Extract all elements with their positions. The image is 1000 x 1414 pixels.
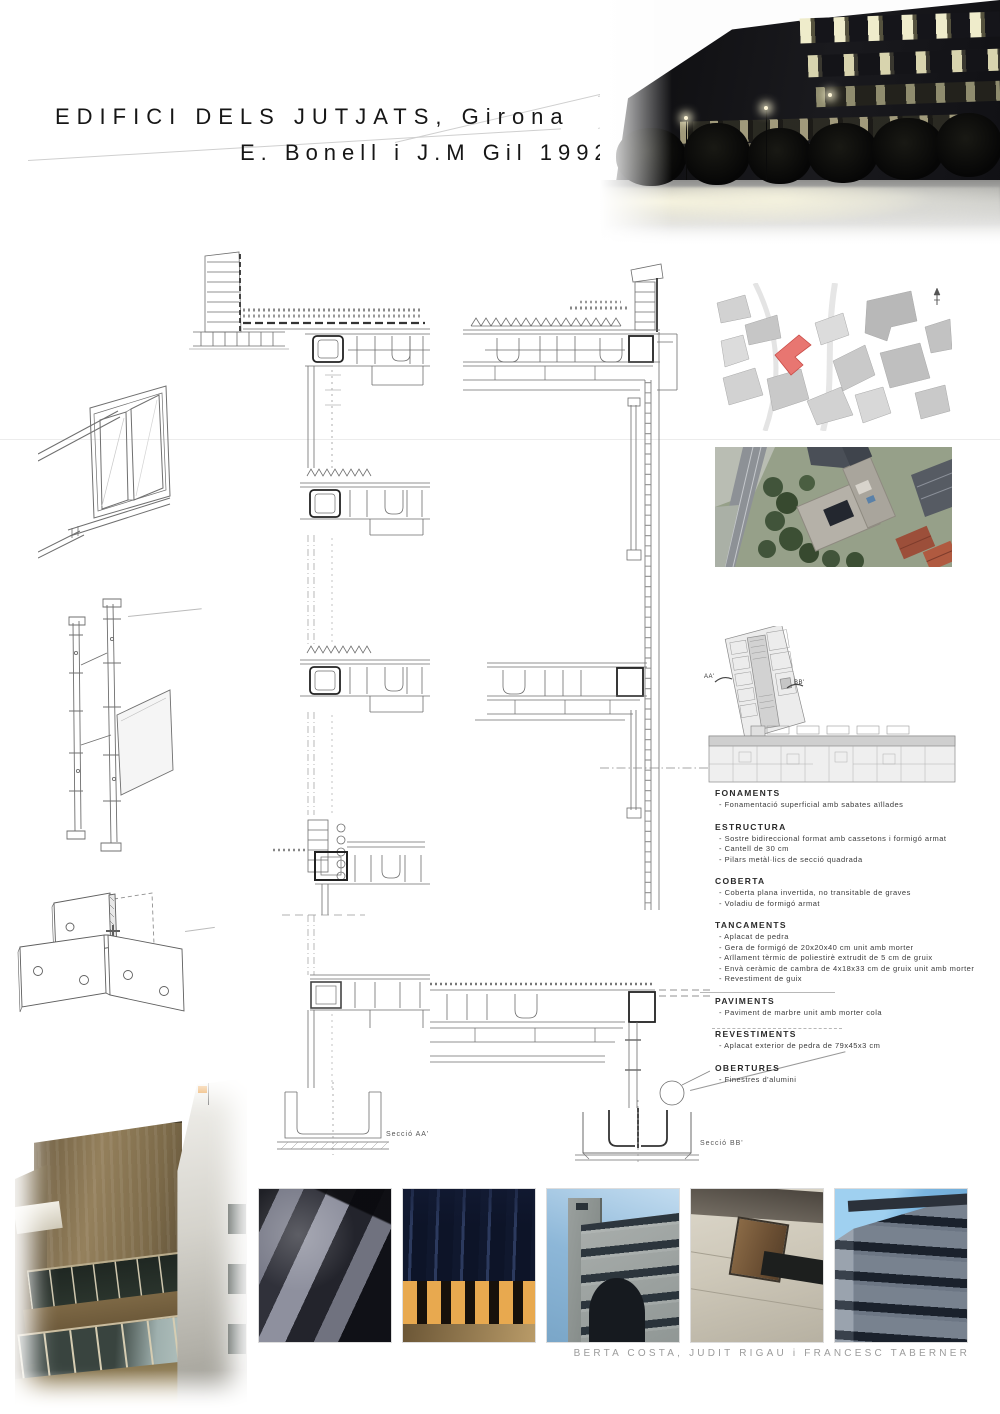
- presentation-board: EDIFICI DELS JUTJATS, Girona E. Bonell i…: [0, 0, 1000, 1414]
- floor-plan-figure: AA' BB': [703, 626, 963, 788]
- spec-item: - Sostre bidireccional format amb casset…: [715, 834, 987, 845]
- streetlight-pole: [766, 108, 767, 180]
- photo-fade: [600, 224, 1000, 246]
- spec-heading: PAVIMENTS: [715, 996, 987, 1006]
- tree-silhouette: [936, 113, 1000, 177]
- streetlight: [684, 116, 688, 120]
- photo-fade: [600, 0, 672, 246]
- spec-list: - Finestres d'alumini: [715, 1075, 987, 1086]
- spec-heading: REVESTIMENTS: [715, 1029, 987, 1039]
- credits-line: BERTA COSTA, JUDIT RIGAU i FRANCESC TABE…: [574, 1348, 970, 1359]
- spec-item: - Paviment de marbre unit amb morter col…: [715, 1008, 987, 1019]
- spec-item: - Aplacat de pedra: [715, 932, 987, 943]
- spec-heading: COBERTA: [715, 876, 987, 886]
- night-facade-photo: [600, 0, 1000, 246]
- stone-anchor-sketch: [12, 885, 197, 1045]
- spec-section: TANCAMENTS - Aplacat de pedra- Gera de f…: [715, 920, 987, 985]
- spec-heading: ESTRUCTURA: [715, 822, 987, 832]
- tree-silhouette: [684, 123, 750, 185]
- facade-detail-photo: [258, 1188, 392, 1343]
- building-corner-photo: [834, 1188, 968, 1343]
- street-corner-photo: [546, 1188, 680, 1343]
- person-silhouette: [589, 1278, 644, 1343]
- spec-item: - Fonamentació superficial amb sabates a…: [715, 800, 987, 811]
- plan-label-aa: AA': [704, 674, 715, 680]
- spec-list: - Fonamentació superficial amb sabates a…: [715, 800, 987, 811]
- spec-item: - Pilars metàl·lics de secció quadrada: [715, 855, 987, 866]
- aerial-photo-figure: [715, 447, 952, 567]
- north-arrow-icon: [934, 288, 940, 305]
- spec-list: - Aplacat exterior de pedra de 79x45x3 c…: [715, 1041, 987, 1052]
- spec-section: COBERTA - Coberta plana invertida, no tr…: [715, 876, 987, 909]
- facade-columns: [403, 1189, 535, 1281]
- stone-joint: [690, 1288, 824, 1312]
- cladding-closeup-photo: [690, 1188, 824, 1343]
- tree-silhouette: [872, 118, 944, 180]
- lit-ground-floor: [403, 1281, 535, 1324]
- streetlight: [764, 106, 768, 110]
- construction-section-details: [185, 250, 710, 1165]
- spec-item: - Finestres d'alumini: [715, 1075, 987, 1086]
- spec-section: ESTRUCTURA - Sostre bidireccional format…: [715, 822, 987, 866]
- spec-list: - Aplacat de pedra- Gera de formigó de 2…: [715, 932, 987, 985]
- tree-silhouette: [748, 128, 812, 184]
- spec-item: - Aïllament tèrmic de poliestirè extrudi…: [715, 953, 987, 964]
- spec-item: - Revestiment de guix: [715, 974, 987, 985]
- spec-heading: FONAMENTS: [715, 788, 987, 798]
- spec-item: - Coberta plana invertida, no transitabl…: [715, 888, 987, 899]
- spec-heading: TANCAMENTS: [715, 920, 987, 930]
- spec-item: - Cantell de 30 cm: [715, 844, 987, 855]
- seccio-aa-label: Secció AA': [386, 1131, 429, 1138]
- spec-item: - Envà ceràmic de cambra de 4x18x33 cm d…: [715, 964, 987, 975]
- spec-item: - Gera de formigó de 20x20x40 cm unit am…: [715, 943, 987, 954]
- spec-list: - Paviment de marbre unit amb morter col…: [715, 1008, 987, 1019]
- spec-section: FONAMENTS - Fonamentació superficial amb…: [715, 788, 987, 811]
- spec-list: - Coberta plana invertida, no transitabl…: [715, 888, 987, 909]
- night-street-photo: [402, 1188, 536, 1343]
- spec-item: - Aplacat exterior de pedra de 79x45x3 c…: [715, 1041, 987, 1052]
- site-highlight: [775, 335, 811, 375]
- page-title: EDIFICI DELS JUTJATS, Girona: [55, 104, 570, 130]
- spec-list: - Sostre bidireccional format amb casset…: [715, 834, 987, 866]
- spec-section: OBERTURES - Finestres d'alumini: [715, 1063, 987, 1086]
- streetlight-pole: [686, 118, 687, 180]
- spec-item: - Voladiu de formigó armat: [715, 899, 987, 910]
- tower-window: [576, 1203, 588, 1211]
- tree-silhouette: [808, 123, 878, 183]
- city-map-figure: [715, 283, 952, 431]
- cladding-rail-sketch: [45, 595, 175, 853]
- page-subtitle: E. Bonell i J.M Gil 1992: [240, 140, 613, 166]
- plan-label-bb: BB': [794, 680, 805, 686]
- pavement: [403, 1324, 535, 1342]
- specs-block: FONAMENTS - Fonamentació superficial amb…: [715, 788, 987, 1096]
- spec-section: PAVIMENTS - Paviment de marbre unit amb …: [715, 996, 987, 1019]
- spec-section: REVESTIMENTS - Aplacat exterior de pedra…: [715, 1029, 987, 1052]
- courtyard-photo: [15, 1078, 247, 1410]
- photo-vignette: [15, 1078, 247, 1410]
- soffit-shadow: [690, 1188, 824, 1224]
- seccio-bb-label: Secció BB': [700, 1140, 744, 1147]
- window-axonometric-sketch: [38, 378, 198, 568]
- spec-heading: OBERTURES: [715, 1063, 987, 1073]
